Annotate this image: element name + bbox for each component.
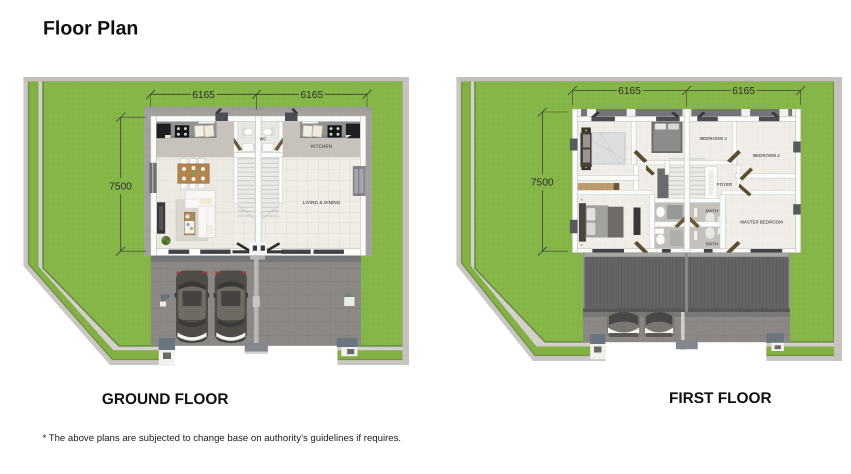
svg-text:Floor Plan: Floor Plan xyxy=(43,18,138,40)
svg-text:7500: 7500 xyxy=(109,181,132,192)
svg-text:6165: 6165 xyxy=(732,86,755,97)
svg-text:6165: 6165 xyxy=(618,86,641,97)
svg-text:7500: 7500 xyxy=(531,178,554,189)
svg-text:FIRST FLOOR: FIRST FLOOR xyxy=(669,390,772,407)
svg-text:* The above plans are subjecte: * The above plans are subjected to chang… xyxy=(43,433,402,444)
svg-text:6165: 6165 xyxy=(300,90,323,101)
svg-text:GROUND FLOOR: GROUND FLOOR xyxy=(102,391,229,408)
svg-text:6165: 6165 xyxy=(192,90,215,101)
